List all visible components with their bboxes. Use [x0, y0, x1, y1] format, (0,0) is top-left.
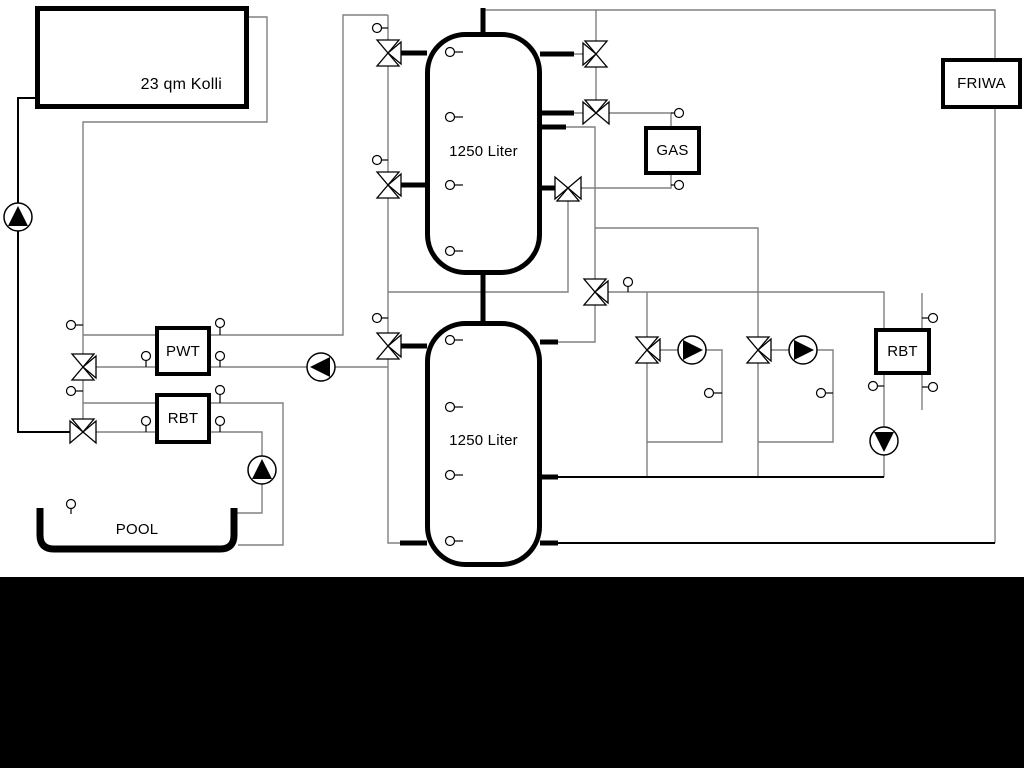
sensor-rbt2-bottom	[869, 382, 885, 391]
pump-solar	[4, 203, 32, 231]
pipe-gas-return	[580, 173, 671, 188]
gas-boiler-box: GAS	[644, 126, 701, 175]
rbt-left-box: RBT	[155, 393, 211, 444]
pipe-top-header-friwa	[483, 10, 995, 543]
sensor-pwt-left-top	[67, 321, 84, 330]
pump-rbt-right	[870, 427, 898, 455]
sensor-pwt-right-bottom	[216, 352, 225, 368]
sensor-pwt-right-top	[216, 319, 225, 336]
rbt-right-label: RBT	[887, 343, 918, 360]
valve-solar-rbt	[70, 419, 96, 443]
sensor-gas-return	[671, 181, 684, 190]
sensor-pwt-left-bottom	[142, 352, 151, 368]
pwt-label: PWT	[166, 343, 200, 360]
sensor-heater-bottom	[922, 383, 938, 392]
rbt-right-box: RBT	[874, 328, 931, 375]
valve-distribution	[584, 279, 608, 305]
rbt-left-label: RBT	[168, 410, 199, 427]
valve-gas-return	[555, 177, 581, 201]
pump-pwt-secondary	[307, 353, 335, 381]
friwa-box: FRIWA	[941, 58, 1022, 109]
pwt-heat-exchanger-box: PWT	[155, 326, 211, 376]
solar-collector-label: 23 qm Kolli	[141, 76, 222, 94]
pipe-solar-loop	[18, 98, 83, 432]
sensor-valve-t1-upper	[373, 24, 389, 33]
sensor-header	[624, 278, 633, 293]
sensor-rbt-right-top	[216, 386, 225, 404]
pump-pool	[248, 456, 276, 484]
tank-bottom-label: 1250 Liter	[425, 432, 542, 449]
pipe-tank-left-column	[388, 15, 400, 543]
pool-label: POOL	[87, 521, 187, 538]
sensor-circuit1	[705, 389, 723, 398]
gas-boiler-label: GAS	[656, 142, 688, 159]
pipe-tank-mid-riser	[558, 127, 595, 342]
sensor-heater-top	[922, 314, 938, 323]
solar-collector-box: 23 qm Kolli	[35, 6, 249, 109]
pipe-rbt-lower-pool	[83, 432, 262, 513]
friwa-label: FRIWA	[957, 75, 1006, 92]
bottom-black-bar	[0, 577, 1024, 768]
valve-tank2-left	[377, 333, 401, 359]
tank-top-label: 1250 Liter	[425, 143, 542, 160]
sensor-gas-supply	[671, 109, 684, 118]
sensor-valve-t1-lower	[373, 156, 389, 165]
valve-circuit1-mixer	[636, 337, 660, 363]
valve-solar-pwt	[72, 354, 96, 380]
pipe-circuit2-supply	[595, 228, 758, 477]
sensor-rbt-left-bottom	[142, 417, 151, 433]
sensor-rbt-left-top	[67, 387, 84, 396]
valve-tank1-left-upper	[377, 40, 401, 66]
valve-circuit2-mixer	[747, 337, 771, 363]
sensor-valve-t2	[373, 314, 389, 323]
sensor-pool	[67, 500, 76, 515]
valve-gas-supply	[583, 100, 609, 124]
valve-tank1-right-top	[583, 41, 607, 67]
pump-circuit2	[789, 336, 817, 364]
sensor-rbt-right-bottom	[216, 417, 225, 433]
valve-tank1-left-lower	[377, 172, 401, 198]
sensor-circuit2	[817, 389, 834, 398]
pump-circuit1	[678, 336, 706, 364]
hydraulic-schematic: 23 qm Kolli GAS FRIWA PWT RBT RBT 1250 L…	[0, 0, 1024, 768]
